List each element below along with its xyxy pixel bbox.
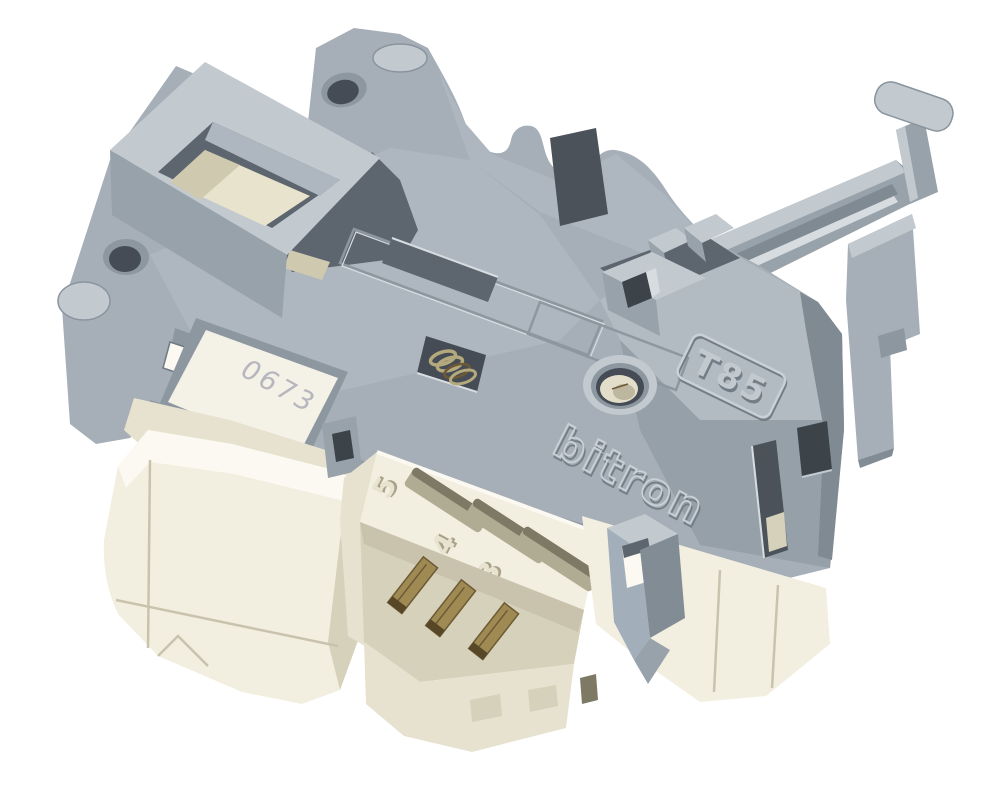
side-slot-cream: [766, 512, 787, 552]
product-photo-stage: 0673 T85 T85 bitron bitron: [0, 0, 1000, 800]
right-cream-hole: [580, 674, 598, 704]
door-interlock-photo: 0673 T85 T85 bitron bitron: [0, 0, 1000, 800]
boss-pin-left: [58, 282, 110, 320]
cam-insert-shadow: [613, 384, 635, 400]
vent-square: [797, 421, 832, 477]
cam-hole: [583, 355, 657, 415]
boss-pin-top: [373, 44, 427, 72]
mounting-hole-left: [109, 246, 141, 272]
